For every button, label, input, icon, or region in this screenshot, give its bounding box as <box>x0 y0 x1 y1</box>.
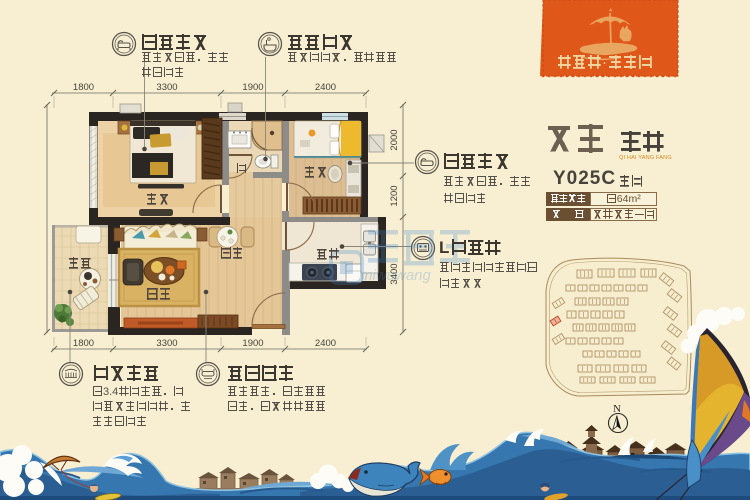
svg-text:2000: 2000 <box>389 129 400 150</box>
svg-text:2400: 2400 <box>315 338 336 349</box>
svg-text:1800: 1800 <box>73 82 94 93</box>
svg-text:1900: 1900 <box>242 82 263 93</box>
svg-text:3300: 3300 <box>156 82 177 93</box>
svg-text:miwuwang: miwuwang <box>360 267 432 284</box>
svg-text:1800: 1800 <box>73 338 94 349</box>
svg-text:1200: 1200 <box>389 185 400 206</box>
svg-text:2400: 2400 <box>315 82 336 93</box>
svg-text:QI HAI YANG FANG: QI HAI YANG FANG <box>619 155 672 161</box>
svg-text:3300: 3300 <box>156 338 177 349</box>
svg-text:1900: 1900 <box>242 338 263 349</box>
